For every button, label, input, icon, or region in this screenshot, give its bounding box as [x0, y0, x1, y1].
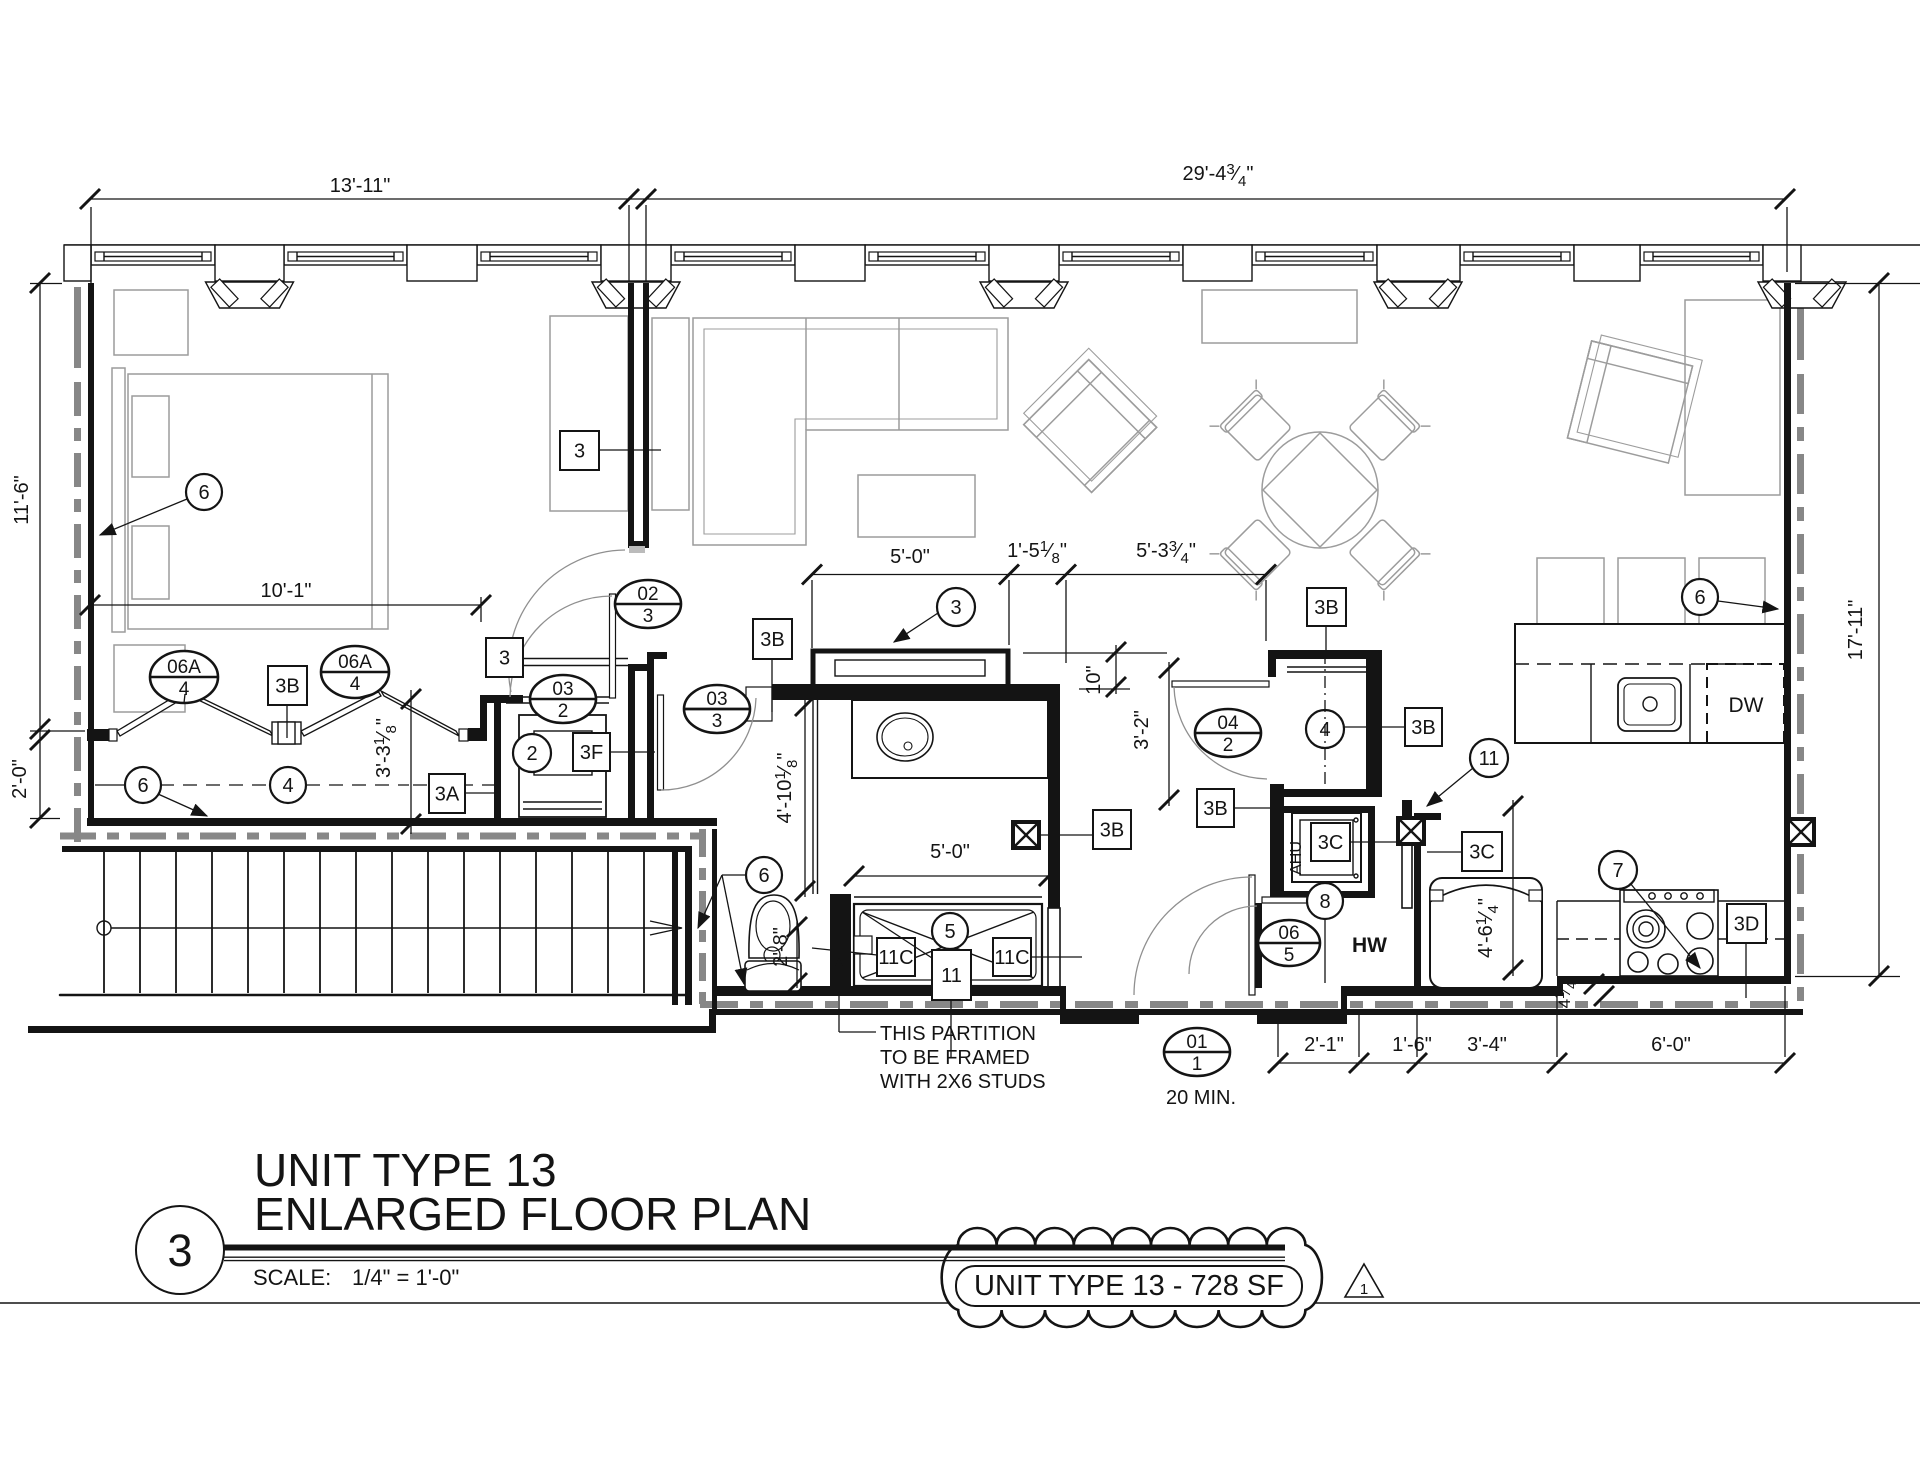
svg-text:THIS PARTITION: THIS PARTITION [880, 1023, 1036, 1045]
svg-text:3: 3 [574, 441, 585, 463]
svg-text:3A: 3A [435, 784, 460, 806]
svg-text:20 MIN.: 20 MIN. [1166, 1087, 1236, 1109]
svg-text:6'-0": 6'-0" [1651, 1034, 1691, 1056]
svg-text:01: 01 [1186, 1032, 1207, 1053]
svg-text:6: 6 [758, 865, 769, 887]
svg-text:2'-1": 2'-1" [1304, 1034, 1344, 1056]
svg-text:3D: 3D [1734, 914, 1760, 936]
svg-text:02: 02 [637, 584, 658, 605]
svg-text:6: 6 [198, 482, 209, 504]
svg-text:5: 5 [944, 921, 955, 943]
svg-text:3'-2": 3'-2" [1131, 710, 1153, 750]
svg-text:11: 11 [1479, 748, 1500, 770]
svg-text:1: 1 [1192, 1054, 1203, 1075]
svg-text:3: 3 [499, 648, 510, 670]
svg-text:1/4" = 1'-0": 1/4" = 1'-0" [352, 1265, 459, 1290]
svg-text:2'-8": 2'-8" [770, 927, 792, 967]
svg-text:5'-0": 5'-0" [930, 841, 970, 863]
svg-text:3B: 3B [760, 629, 784, 651]
svg-text:06A: 06A [167, 657, 201, 678]
svg-text:2: 2 [526, 743, 537, 765]
svg-text:6: 6 [137, 775, 148, 797]
svg-text:4: 4 [282, 775, 293, 797]
svg-text:ENLARGED FLOOR PLAN: ENLARGED FLOOR PLAN [254, 1188, 811, 1240]
svg-text:SCALE:: SCALE: [253, 1265, 331, 1290]
svg-text:2'-0": 2'-0" [9, 759, 31, 799]
svg-text:04: 04 [1217, 713, 1239, 734]
svg-text:3: 3 [712, 711, 723, 732]
svg-text:1: 1 [1360, 1281, 1368, 1298]
svg-text:06: 06 [1278, 923, 1299, 944]
svg-text:06A: 06A [338, 652, 372, 673]
svg-text:8: 8 [1319, 891, 1330, 913]
svg-text:5: 5 [1284, 945, 1295, 966]
svg-text:3B: 3B [1411, 717, 1435, 739]
svg-text:2: 2 [1223, 735, 1234, 756]
svg-text:3B: 3B [1203, 798, 1227, 820]
svg-text:1'-6": 1'-6" [1392, 1034, 1432, 1056]
svg-text:AHU: AHU [1288, 841, 1305, 875]
svg-text:11: 11 [941, 965, 962, 987]
svg-text:3B: 3B [275, 676, 299, 698]
svg-text:13'-11": 13'-11" [330, 175, 391, 197]
svg-text:HW: HW [1352, 934, 1387, 957]
svg-text:3C: 3C [1469, 842, 1495, 864]
svg-text:3: 3 [643, 606, 654, 627]
svg-text:3C: 3C [1318, 832, 1344, 854]
svg-text:5'-0": 5'-0" [890, 546, 930, 568]
svg-text:WITH 2X6 STUDS: WITH 2X6 STUDS [880, 1071, 1046, 1093]
svg-text:10": 10" [1083, 665, 1105, 694]
svg-text:17'-11": 17'-11" [1845, 600, 1867, 661]
svg-text:03: 03 [552, 679, 573, 700]
svg-text:11'-6": 11'-6" [11, 475, 33, 524]
svg-text:4: 4 [350, 674, 361, 695]
svg-text:10'-1": 10'-1" [261, 580, 312, 602]
svg-text:3'-4": 3'-4" [1467, 1034, 1507, 1056]
svg-text:11C: 11C [994, 947, 1029, 969]
svg-text:3: 3 [950, 597, 961, 619]
svg-text:7: 7 [1612, 860, 1623, 882]
svg-text:3F: 3F [580, 742, 603, 764]
svg-text:3B: 3B [1100, 820, 1124, 842]
svg-text:3B: 3B [1314, 597, 1338, 619]
svg-text:TO BE FRAMED: TO BE FRAMED [880, 1047, 1030, 1069]
svg-text:03: 03 [706, 689, 727, 710]
svg-text:UNIT TYPE 13 - 728 SF: UNIT TYPE 13 - 728 SF [974, 1270, 1284, 1302]
svg-text:3: 3 [167, 1225, 192, 1276]
svg-text:2: 2 [558, 701, 569, 722]
svg-text:11C: 11C [878, 947, 913, 969]
svg-text:DW: DW [1729, 694, 1764, 717]
svg-text:6: 6 [1694, 587, 1705, 609]
